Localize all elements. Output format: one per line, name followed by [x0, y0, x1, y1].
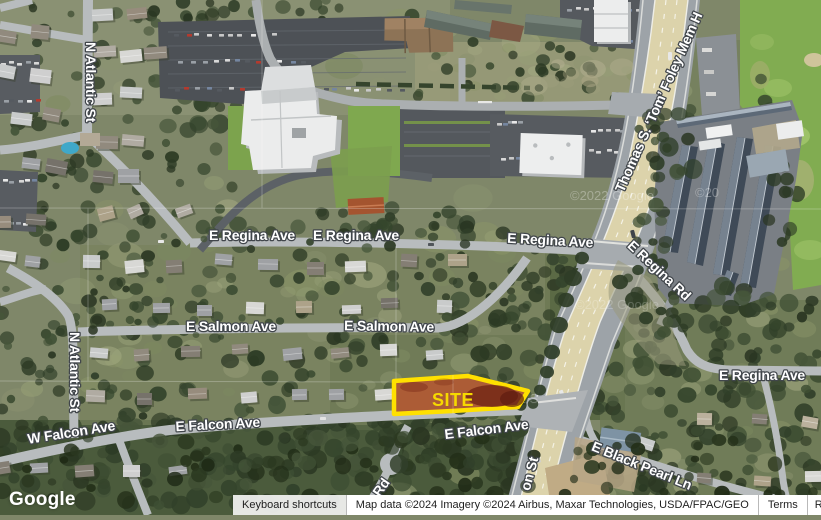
svg-text:N Atlantic St: N Atlantic St [83, 42, 99, 123]
svg-text:E Regina Ave: E Regina Ave [719, 367, 805, 383]
svg-text:©20: ©20 [695, 185, 719, 200]
svg-text:E Regina Ave: E Regina Ave [313, 227, 399, 243]
svg-text:E Salmon Ave: E Salmon Ave [344, 317, 435, 335]
svg-text:©2022 Google: ©2022 Google [570, 188, 654, 203]
svg-text:SITE: SITE [432, 390, 474, 410]
svg-text:E Salmon Ave: E Salmon Ave [186, 318, 276, 334]
svg-text:©2022 Google: ©2022 Google [575, 297, 659, 312]
svg-text:E Regina Ave: E Regina Ave [209, 227, 295, 243]
svg-text:N Atlantic St: N Atlantic St [67, 332, 83, 413]
